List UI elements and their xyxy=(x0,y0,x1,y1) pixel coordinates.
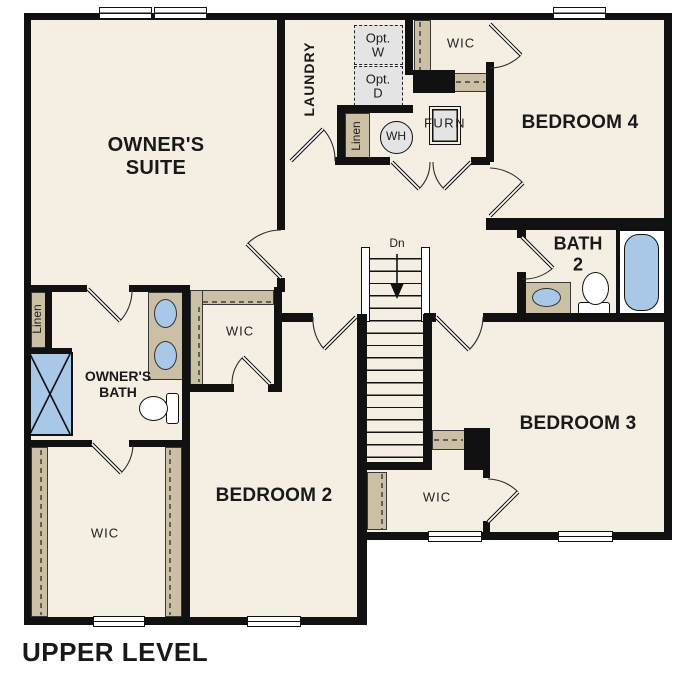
wall xyxy=(486,62,494,162)
wall xyxy=(337,105,345,162)
wall xyxy=(517,230,526,238)
wall xyxy=(357,462,432,470)
wall xyxy=(616,230,620,317)
floor-plan-upper-level: OWNER'S SUITE LAUNDRY Opt. W Opt. D Line… xyxy=(0,0,687,687)
owners-wic-rod-left xyxy=(31,447,48,617)
wall xyxy=(31,440,92,447)
window xyxy=(247,616,301,627)
window xyxy=(428,531,482,542)
room-label-wic-bedroom4: WIC xyxy=(447,37,475,52)
label-optional-dryer: Opt. D xyxy=(366,72,391,99)
window xyxy=(553,7,606,19)
exterior-wall-bottom-left xyxy=(24,617,367,625)
wall xyxy=(413,70,455,93)
label-linen-owners: Linen xyxy=(31,304,45,333)
wall xyxy=(405,13,413,75)
window xyxy=(558,531,613,542)
bath2-sink xyxy=(532,288,561,307)
stair-rail-right xyxy=(421,247,430,322)
room-label-owners-suite: OWNER'S SUITE xyxy=(108,134,205,180)
label-furnace: FURN xyxy=(424,117,466,132)
plan-title: UPPER LEVEL xyxy=(22,637,208,668)
bedroom3-wic-rod xyxy=(367,472,387,530)
label-linen-laundry: Linen xyxy=(350,121,364,150)
wall xyxy=(31,285,87,292)
window xyxy=(93,616,145,627)
wall xyxy=(486,218,672,230)
wall xyxy=(464,428,490,470)
label-stairs-down: Dn xyxy=(389,237,404,251)
wall xyxy=(483,313,672,322)
room-label-wic-bedroom2: WIC xyxy=(226,325,254,340)
owners-bath-sink-1 xyxy=(154,299,177,328)
stair-treads xyxy=(367,247,424,462)
wall xyxy=(483,521,490,532)
room-label-bedroom2: BEDROOM 2 xyxy=(216,485,333,507)
label-water-heater: WH xyxy=(386,130,406,144)
wall xyxy=(182,287,190,617)
bedroom4-closet-shelf xyxy=(453,73,487,92)
room-label-bedroom4: BEDROOM 4 xyxy=(522,112,639,134)
wall xyxy=(517,272,526,317)
wall xyxy=(280,313,313,322)
wall xyxy=(129,440,190,447)
room-label-wic-bedroom3: WIC xyxy=(423,491,451,506)
room-label-bath2: BATH 2 xyxy=(554,233,603,274)
owners-bath-sink-2 xyxy=(154,341,177,370)
room-label-laundry: LAUNDRY xyxy=(301,42,317,117)
exterior-wall-bottom-right xyxy=(357,532,672,540)
wall xyxy=(129,285,190,292)
exterior-wall-right xyxy=(664,13,672,540)
bedroom4-wic-rod xyxy=(414,20,431,72)
stair-rail-left xyxy=(361,247,370,322)
wall xyxy=(268,384,282,392)
room-label-owners-bath: OWNER'S BATH xyxy=(85,368,151,400)
wall xyxy=(483,470,490,478)
wall xyxy=(274,287,282,392)
wall xyxy=(339,105,413,113)
room-label-wic-owners: WIC xyxy=(91,527,119,542)
window xyxy=(99,7,152,19)
bedroom2-wic-rod-left xyxy=(190,290,203,385)
owners-wic-rod-right xyxy=(165,447,182,617)
wall xyxy=(24,348,72,353)
room-label-bedroom3: BEDROOM 3 xyxy=(520,413,637,435)
bath2-tub-icon xyxy=(624,234,659,311)
wall xyxy=(45,292,52,352)
bedroom3-closet-shelf xyxy=(432,430,465,450)
wall xyxy=(277,13,285,230)
bath2-toilet-icon xyxy=(582,272,609,305)
label-optional-washer: Opt. W xyxy=(366,31,391,58)
wall xyxy=(423,314,432,470)
shower-icon xyxy=(28,352,73,436)
window xyxy=(154,7,207,19)
